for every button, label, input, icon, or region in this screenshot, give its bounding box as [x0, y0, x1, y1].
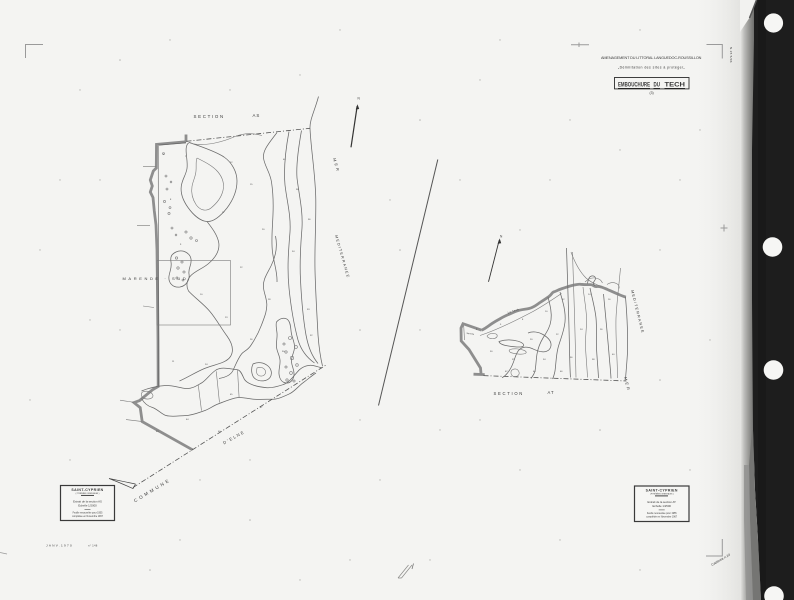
svg-text:EMBOUCHURE: EMBOUCHURE	[618, 83, 650, 89]
svg-text:AMENAGEMENT DU LITTORAL LAN: AMENAGEMENT DU LITTORAL LANGUEDOC-ROUSSI…	[601, 56, 702, 60]
svg-text:SECTION: SECTION	[494, 391, 525, 396]
svg-text:AT: AT	[548, 390, 555, 395]
svg-text:AS: AS	[253, 113, 261, 118]
svg-text:SECTION: SECTION	[194, 114, 225, 119]
svg-text:Feuille renouvelée pour 1955: Feuille renouvelée pour 1955	[73, 512, 103, 515]
svg-text:( PYRÉNÉES ORIENTALES ): ( PYRÉNÉES ORIENTALES )	[76, 492, 100, 495]
svg-text:N.15 5/06: N.15 5/06	[729, 47, 733, 63]
svg-text:n° 146: n° 146	[88, 545, 98, 548]
svg-text:Echelle 1/2500: Echelle 1/2500	[652, 504, 671, 508]
svg-text:complétée en Novembre 1967: complétée en Novembre 1967	[646, 515, 677, 518]
svg-text:( PYRÉNÉES ORIENTALES ): ( PYRÉNÉES ORIENTALES )	[650, 492, 674, 495]
svg-text:JANV.1970: JANV.1970	[46, 544, 73, 548]
svg-text:complétée en Novembre 1967: complétée en Novembre 1967	[72, 515, 103, 518]
svg-text:SAINT-CYPRIEN: SAINT-CYPRIEN	[646, 489, 678, 493]
svg-text:TECH: TECH	[665, 83, 686, 89]
svg-text:MARENDE · SUD: MARENDE · SUD	[123, 276, 189, 281]
svg-text:DU: DU	[654, 83, 661, 89]
svg-text:Feuille renouvelée pour 1955: Feuille renouvelée pour 1955	[647, 512, 677, 515]
svg-text:SAINT-CYPRIEN: SAINT-CYPRIEN	[71, 488, 103, 492]
svg-text:(3): (3)	[650, 91, 654, 95]
svg-text:Echelle 1/2000: Echelle 1/2000	[78, 504, 97, 508]
svg-text:„Délimitation des sites à prot: „Délimitation des sites à protéger„	[618, 66, 686, 70]
